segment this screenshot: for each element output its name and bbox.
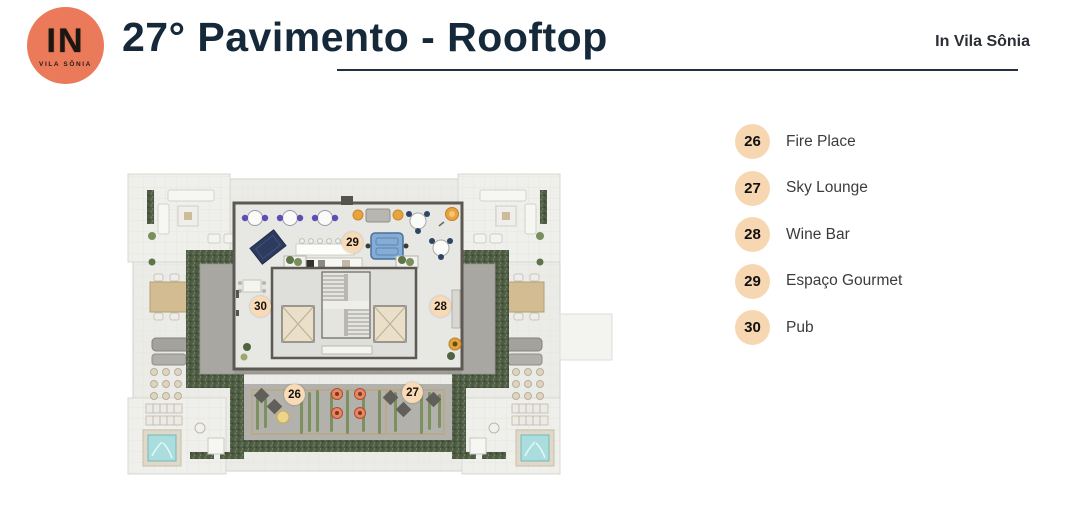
elevator	[282, 306, 314, 342]
legend-label: Pub	[786, 319, 814, 337]
round-planter	[195, 423, 205, 433]
legend-number-badge: 27	[735, 171, 770, 206]
legend-number-badge: 28	[735, 217, 770, 252]
service-core	[272, 268, 416, 358]
legend-label: Sky Lounge	[786, 179, 868, 197]
rooftop-lounge-room	[234, 196, 462, 374]
elevator	[374, 306, 406, 342]
round-table	[277, 411, 289, 423]
stairs	[322, 272, 370, 338]
plan-badge-30: 30	[250, 296, 271, 317]
legend-label: Espaço Gourmet	[786, 272, 902, 290]
logo-text: IN	[47, 24, 85, 58]
roof-notch	[341, 196, 353, 205]
legend-number-badge: 29	[735, 264, 770, 299]
logo-subtext: VILA SÔNIA	[39, 61, 92, 68]
project-name-label: In Vila Sônia	[935, 33, 1030, 51]
legend-item-fire-place: 26 Fire Place	[735, 124, 902, 159]
legend-label: Fire Place	[786, 133, 856, 151]
floor-plan-illustration	[0, 0, 1066, 516]
plan-badge-28: 28	[430, 296, 451, 317]
side-table	[470, 438, 486, 454]
cafe-seating-right	[513, 369, 544, 400]
legend-item-wine-bar: 28 Wine Bar	[735, 217, 902, 252]
brand-logo: IN VILA SÔNIA	[27, 7, 104, 84]
hedge-strip	[540, 190, 547, 224]
jacuzzi-left	[143, 430, 181, 466]
legend-item-espaco-gourmet: 29 Espaço Gourmet	[735, 264, 902, 299]
legend-item-sky-lounge: 27 Sky Lounge	[735, 171, 902, 206]
legend-number-badge: 26	[735, 124, 770, 159]
side-table	[208, 438, 224, 454]
header-divider	[337, 69, 1018, 71]
plan-badge-27: 27	[402, 382, 423, 403]
cafe-seating-left	[151, 369, 182, 400]
gourmet-round-tables	[242, 211, 338, 226]
legend: 26 Fire Place 27 Sky Lounge 28 Wine Bar …	[735, 124, 902, 357]
round-planter	[489, 423, 499, 433]
legend-label: Wine Bar	[786, 226, 850, 244]
hedge-strip	[147, 190, 154, 224]
side-balcony-extension	[560, 314, 612, 360]
blue-sofa	[366, 233, 409, 259]
rooftop-floorplan-slide: 26 27 28 29 30 IN VILA SÔNIA 27° Pavimen…	[0, 0, 1066, 516]
legend-item-pub: 30 Pub	[735, 310, 902, 345]
plan-badge-26: 26	[284, 384, 305, 405]
page-title: 27° Pavimento - Rooftop	[122, 15, 608, 60]
jacuzzi-right	[516, 430, 554, 466]
plan-badge-29: 29	[342, 232, 363, 253]
legend-number-badge: 30	[735, 310, 770, 345]
